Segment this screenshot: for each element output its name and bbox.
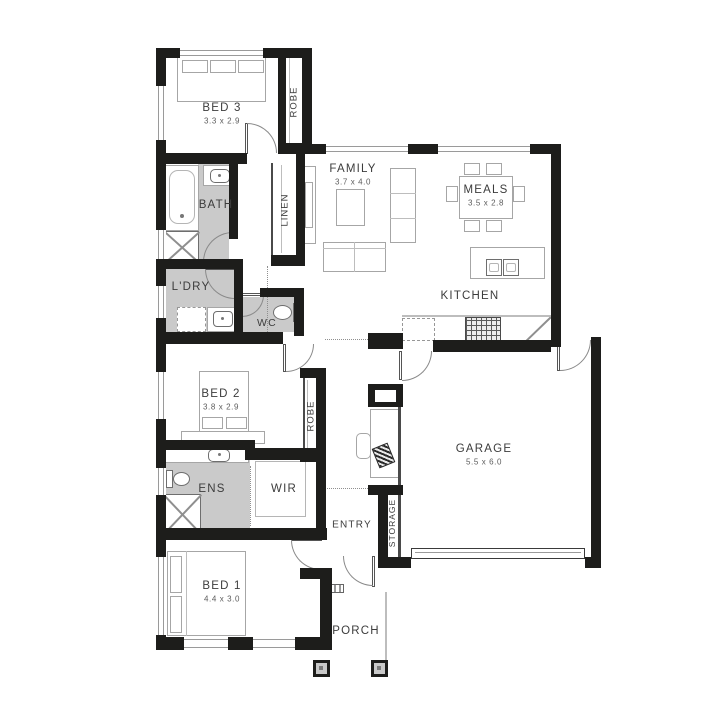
wall (302, 144, 326, 154)
room-dims-bed3: 3.3 x 2.9 (204, 117, 240, 126)
room-dims-meals: 3.5 x 2.8 (468, 199, 504, 208)
tv (305, 182, 313, 228)
wall (368, 333, 403, 349)
bed3-pillow (182, 60, 208, 73)
wall (302, 48, 312, 148)
window (156, 86, 166, 140)
room-dims-garage: 5.5 x 6.0 (466, 458, 502, 467)
dining-chair (464, 163, 480, 175)
dining-chair (464, 220, 480, 232)
bath-basin-tap (218, 174, 221, 177)
room-label-wc: WC (257, 317, 277, 329)
coffee-table (336, 189, 365, 226)
room-label-ens: ENS (198, 483, 225, 495)
porch-post (313, 660, 330, 677)
ensuite-cistern (166, 470, 173, 488)
room-label-robe-bed2: ROBE (306, 401, 317, 432)
wall (271, 255, 305, 266)
room-label-meals: MEALS (464, 184, 509, 196)
bed1-pillow (170, 596, 182, 633)
room-label-entry: ENTRY (332, 520, 372, 531)
kitchen-sink-bowl (489, 263, 499, 272)
bed1-door-swing (291, 540, 321, 570)
sofa-cushion-line (354, 242, 355, 272)
garage-internal-door-swing (402, 351, 432, 381)
wall (296, 143, 305, 265)
wall (278, 57, 286, 149)
porch-post (371, 660, 388, 677)
room-label-family: FAMILY (329, 163, 376, 175)
room-label-bed1: BED 1 (202, 580, 241, 592)
ensuite-basin-tap (218, 453, 221, 456)
sofa-vertical (390, 168, 416, 243)
kitchen-sink-bowl (506, 263, 516, 272)
wall (591, 337, 601, 567)
garage-rear-door-swing (560, 340, 591, 371)
linen-front-line (271, 163, 273, 255)
dining-table (459, 176, 513, 219)
floor-plan: BED 3 3.3 x 2.9 ROBE BATH LINEN FAMILY 3… (0, 0, 702, 704)
window (184, 637, 228, 650)
wall (551, 144, 561, 347)
wall (156, 495, 166, 557)
dining-chair (513, 186, 525, 202)
room-label-garage: GARAGE (456, 443, 512, 455)
room-label-storage: STORAGE (387, 499, 397, 547)
room-label-robe-bed3: ROBE (289, 87, 300, 118)
cooktop (465, 317, 501, 342)
wall (295, 637, 332, 650)
window (438, 144, 530, 154)
wall (156, 637, 184, 650)
bed1-pillow (170, 556, 182, 593)
wall (378, 557, 411, 568)
window (156, 468, 166, 495)
wall (156, 48, 180, 58)
storage-back-line (398, 495, 401, 557)
room-label-bath: BATH (199, 199, 234, 211)
wall (156, 318, 166, 372)
washing-machine-space (177, 307, 206, 332)
dining-chair (486, 220, 502, 232)
dining-chair (486, 163, 502, 175)
entry-bulkhead-line (327, 488, 368, 489)
window (156, 557, 166, 635)
nook-niche (375, 390, 396, 402)
wall (156, 440, 255, 450)
bathtub-drain (180, 214, 184, 218)
sofa-cushion-line (390, 218, 416, 219)
bed3-pillow (238, 60, 264, 73)
wall (408, 144, 438, 154)
porch-edge-line (385, 592, 387, 662)
room-label-ldry: L'DRY (172, 281, 211, 293)
fridge-space (402, 318, 435, 341)
ensuite-toilet-bowl (173, 472, 190, 486)
bed2-pillow (226, 417, 247, 429)
sofa-back-line (323, 248, 386, 249)
wall (433, 340, 551, 352)
room-dims-family: 3.7 x 4.0 (335, 178, 371, 187)
garage-left-line (398, 407, 401, 485)
front-door-swing (343, 556, 373, 586)
room-label-bed3: BED 3 (202, 102, 241, 114)
room-dims-bed1: 4.4 x 3.0 (204, 595, 240, 604)
wall (320, 577, 332, 639)
room-dims-bed2: 3.8 x 2.9 (203, 403, 239, 412)
wall (228, 637, 253, 650)
room-label-bed2: BED 2 (201, 388, 240, 400)
room-label-kitchen: KITCHEN (441, 290, 500, 302)
wall (585, 557, 601, 568)
window (156, 286, 166, 318)
window (326, 144, 408, 154)
wall (156, 332, 283, 344)
bed3-pillow (210, 60, 236, 73)
wall (156, 528, 250, 540)
garage-door-panel (411, 548, 585, 559)
ens-wir-opening (250, 466, 251, 526)
room-label-porch: PORCH (332, 625, 380, 637)
bed2-pillow (202, 417, 223, 429)
wall (250, 528, 327, 540)
window (156, 230, 166, 260)
wall (316, 368, 326, 462)
window (180, 48, 263, 58)
window (253, 637, 295, 650)
window (156, 372, 166, 419)
dining-chair (446, 186, 458, 202)
room-label-wir: WIR (271, 483, 297, 495)
wall (294, 288, 304, 336)
wall (250, 448, 316, 460)
laundry-tap (221, 317, 224, 320)
wall (156, 259, 238, 269)
sofa-cushion-line (390, 193, 416, 194)
family-bulkhead-line (325, 339, 368, 340)
bed3-door-swing (247, 123, 277, 153)
wall (234, 259, 243, 332)
bed1-head-line (186, 551, 187, 636)
room-label-linen: LINEN (280, 194, 291, 227)
desk-chair (356, 433, 371, 459)
